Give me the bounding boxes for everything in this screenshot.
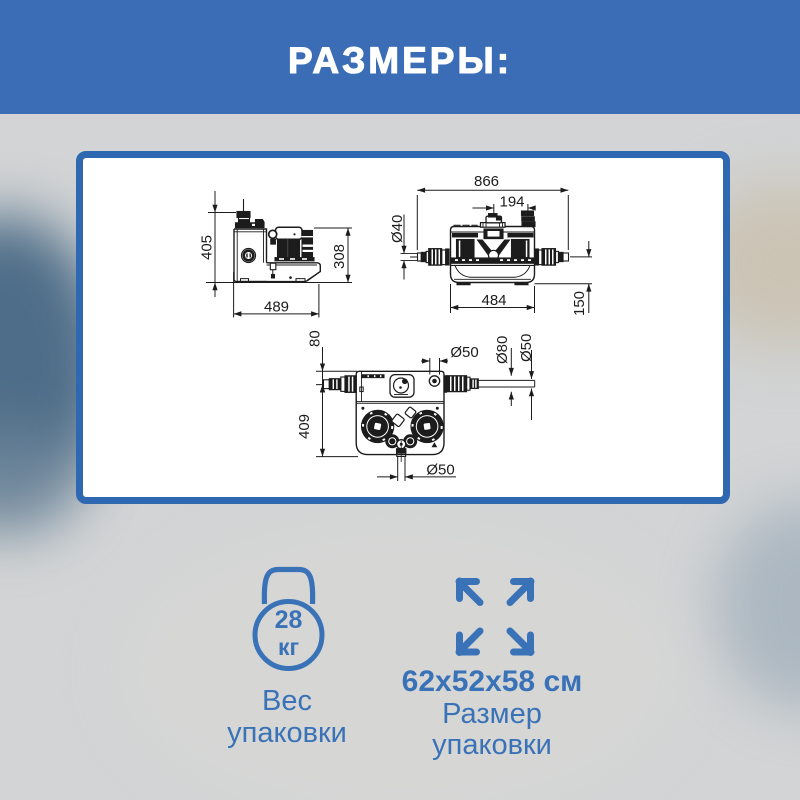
svg-text:150: 150 xyxy=(571,291,588,316)
svg-text:Ø40: Ø40 xyxy=(389,215,406,243)
svg-text:Ø50: Ø50 xyxy=(518,334,535,362)
svg-text:489: 489 xyxy=(264,299,289,316)
svg-text:Ø50: Ø50 xyxy=(426,462,454,479)
svg-text:308: 308 xyxy=(331,244,348,269)
svg-text:405: 405 xyxy=(199,235,216,260)
svg-text:Ø80: Ø80 xyxy=(494,336,511,364)
svg-text:866: 866 xyxy=(474,173,499,190)
svg-text:28: 28 xyxy=(275,606,303,634)
svg-text:194: 194 xyxy=(499,194,524,211)
svg-text:409: 409 xyxy=(296,414,313,439)
svg-text:кг: кг xyxy=(278,634,299,660)
svg-text:484: 484 xyxy=(481,292,506,309)
svg-text:Ø50: Ø50 xyxy=(450,344,478,361)
svg-text:80: 80 xyxy=(307,330,324,347)
